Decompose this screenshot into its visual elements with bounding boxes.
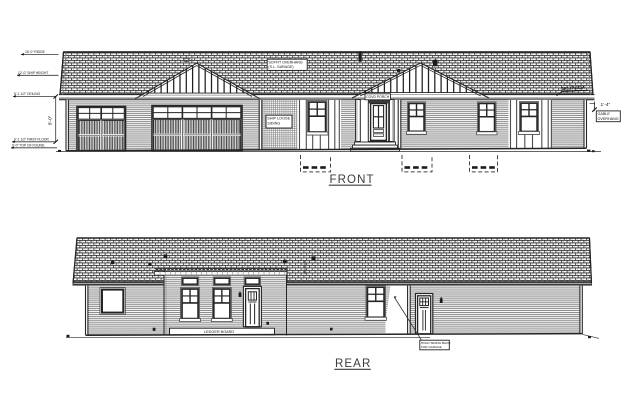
svg-text:0’-0” TOP OF FOUND.: 0’-0” TOP OF FOUND.: [12, 144, 45, 148]
svg-text:8’-0”: 8’-0”: [48, 115, 53, 125]
svg-text:16’-0” RIDGE: 16’-0” RIDGE: [25, 50, 46, 54]
svg-text:GABLE: GABLE: [598, 112, 611, 116]
svg-text:(S.L. GARAGE): (S.L. GARAGE): [268, 65, 293, 69]
svg-text:SIDING: SIDING: [267, 121, 280, 125]
svg-text:0’-1 1/2” FIRST FLOOR: 0’-1 1/2” FIRST FLOOR: [14, 138, 49, 142]
svg-text:FRONT: FRONT: [330, 174, 375, 186]
svg-text:8’-1 1/2” CEILING: 8’-1 1/2” CEILING: [14, 92, 41, 96]
svg-text:1’-4”: 1’-4”: [601, 102, 611, 108]
svg-text:REAR: REAR: [335, 358, 371, 370]
svg-text:FOR GARAGE: FOR GARAGE: [421, 345, 442, 349]
svg-text:OVERHANG: OVERHANG: [598, 117, 619, 121]
svg-text:SHIP LOOSE: SHIP LOOSE: [267, 117, 290, 121]
svg-text:12’-0” SHIP HEIGHT: 12’-0” SHIP HEIGHT: [18, 71, 48, 75]
svg-text:SOFFIT OVERHANG: SOFFIT OVERHANG: [268, 60, 302, 64]
svg-text:LEDGER BOARD: LEDGER BOARD: [204, 330, 234, 334]
svg-text:COVD PORCH: COVD PORCH: [366, 95, 390, 99]
